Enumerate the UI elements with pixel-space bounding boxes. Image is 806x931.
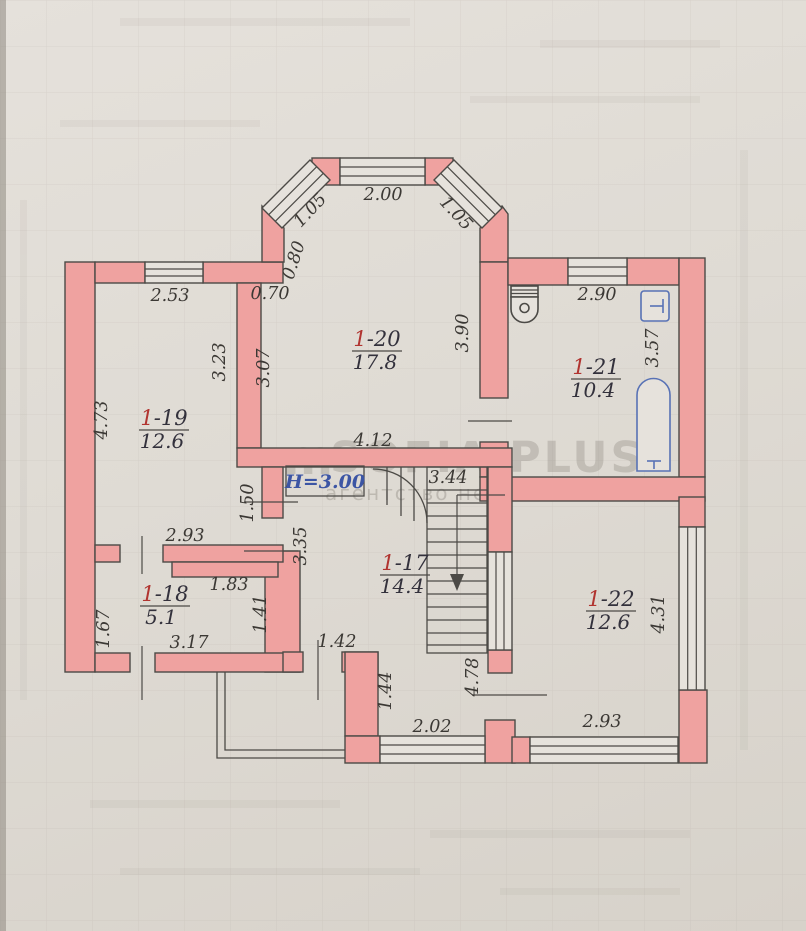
wall-vestibule-bottom-block xyxy=(345,736,380,763)
svg-text:1-20: 1-20 xyxy=(353,327,400,351)
ceiling-height-annotation: H=3.00 xyxy=(284,466,365,496)
wall-hall-left-upper xyxy=(262,467,283,518)
wall-left-exterior xyxy=(65,262,95,672)
dim-r19-left: 4.73 xyxy=(92,401,112,441)
ceiling-height-label: H=3.00 xyxy=(284,471,365,493)
dim-r19-top: 2.53 xyxy=(150,286,190,306)
window-r22-right xyxy=(679,527,705,690)
room-number-red: 1 xyxy=(140,406,153,430)
room-label-1-19: 1-19 12.6 xyxy=(139,406,189,453)
window-vestibule-bottom xyxy=(380,736,485,763)
wall-r22-bottom-left xyxy=(512,737,530,763)
dim-r22-bottom: 2.93 xyxy=(582,712,622,732)
room-area: 10.4 xyxy=(571,378,616,402)
room-label-1-20: 1-20 17.8 xyxy=(352,327,402,374)
room-number-red: 1 xyxy=(381,551,394,575)
toilet-icon xyxy=(511,286,538,323)
svg-text:1-19: 1-19 xyxy=(140,406,187,430)
dim-stair-wall: 4.78 xyxy=(463,658,483,698)
room-number: -19 xyxy=(154,406,188,430)
dim-hall-door: 1.50 xyxy=(238,484,258,523)
wall-r21-top-left xyxy=(508,258,568,285)
room-label-1-17: 1-17 14.4 xyxy=(380,551,430,598)
room-number: -22 xyxy=(601,587,635,611)
room-label-1-22: 1-22 12.6 xyxy=(586,587,636,634)
room-area: 12.6 xyxy=(586,610,631,634)
dim-hall-left: 3.35 xyxy=(291,527,311,566)
room-number: -20 xyxy=(367,327,401,351)
room-number-red: 1 xyxy=(587,587,600,611)
wall-stairs-r22-upper xyxy=(488,467,512,552)
dim-r21-top: 2.90 xyxy=(577,285,617,305)
room-number: -18 xyxy=(155,582,189,606)
dim-r20-left: 3.07 xyxy=(254,348,274,388)
wall-r22-right-top-block xyxy=(679,497,705,527)
page-left-edge-shadow xyxy=(0,0,6,931)
window-r21-top xyxy=(568,258,627,285)
dim-r19-right: 3.23 xyxy=(210,343,230,382)
svg-text:1-18: 1-18 xyxy=(141,582,188,606)
wall-r19-r18-right xyxy=(163,545,283,562)
room-area: 5.1 xyxy=(145,605,177,629)
window-r22-bottom xyxy=(530,737,678,763)
dim-hall-bottom: 1.42 xyxy=(318,632,357,652)
wall-r18-bottom-left xyxy=(95,653,130,672)
svg-text:1-22: 1-22 xyxy=(587,587,634,611)
room-area: 17.8 xyxy=(353,350,398,374)
wall-r22-corner-bottom-right xyxy=(679,690,707,763)
wall-r21-r22 xyxy=(480,477,705,501)
svg-text:1-17: 1-17 xyxy=(381,551,429,575)
dim-r20-right: 3.90 xyxy=(453,314,473,353)
dim-stairs-width: 3.44 xyxy=(429,468,468,488)
room-number-red: 1 xyxy=(141,582,154,606)
wall-r19-top-left xyxy=(95,262,145,283)
scanned-floor-plan-page: m SOFIA PLUS агентство нерухомості xyxy=(0,0,806,931)
wall-hall-bottom-a xyxy=(283,652,303,672)
window-bay-top xyxy=(340,158,425,185)
room-area: 12.6 xyxy=(140,429,185,453)
wall-stairs-r22-mid xyxy=(488,650,512,673)
dim-r19-bottom: 2.93 xyxy=(165,526,205,546)
dim-vestibule-bottom: 2.02 xyxy=(412,717,452,737)
room-label-1-21: 1-21 10.4 xyxy=(571,355,621,402)
bathtub-icon xyxy=(637,379,670,472)
dim-vestibule-left: 1.44 xyxy=(376,672,396,711)
dim-r22-right: 4.31 xyxy=(649,595,669,635)
wall-r19-r18-left xyxy=(95,545,120,562)
sink-icon xyxy=(641,291,669,321)
wall-r18-bottom-right xyxy=(155,653,300,672)
dim-r21-right: 3.57 xyxy=(643,328,663,368)
dim-hall-top: 4.12 xyxy=(353,431,393,451)
wall-vestibule-left xyxy=(345,652,378,736)
wall-stairs-r22-lower-block xyxy=(485,720,515,763)
wall-right-exterior-r21 xyxy=(679,258,705,477)
floor-plan-svg: m SOFIA PLUS агентство нерухомості xyxy=(0,0,806,931)
wall-r19-top-right xyxy=(203,262,283,283)
wall-r21-top-right xyxy=(627,258,679,285)
dim-r18-bottom: 3.17 xyxy=(170,633,210,653)
window-r19-top xyxy=(145,262,203,283)
svg-text:1-21: 1-21 xyxy=(572,355,619,379)
window-stairs-r22-interior xyxy=(488,552,512,650)
room-number-red: 1 xyxy=(353,327,366,351)
room-number: -21 xyxy=(586,355,620,379)
dim-r18-top-inner: 1.83 xyxy=(210,575,249,595)
room-area: 14.4 xyxy=(380,574,425,598)
dim-bay-top: 2.00 xyxy=(363,185,403,205)
room-number: -17 xyxy=(395,551,429,575)
dim-passage-top: 0.70 xyxy=(251,284,290,304)
wall-r20-r21-upper xyxy=(480,262,508,398)
room-number-red: 1 xyxy=(572,355,585,379)
dim-r18-right: 1.41 xyxy=(251,595,271,634)
dim-r18-left: 1.67 xyxy=(94,609,114,649)
